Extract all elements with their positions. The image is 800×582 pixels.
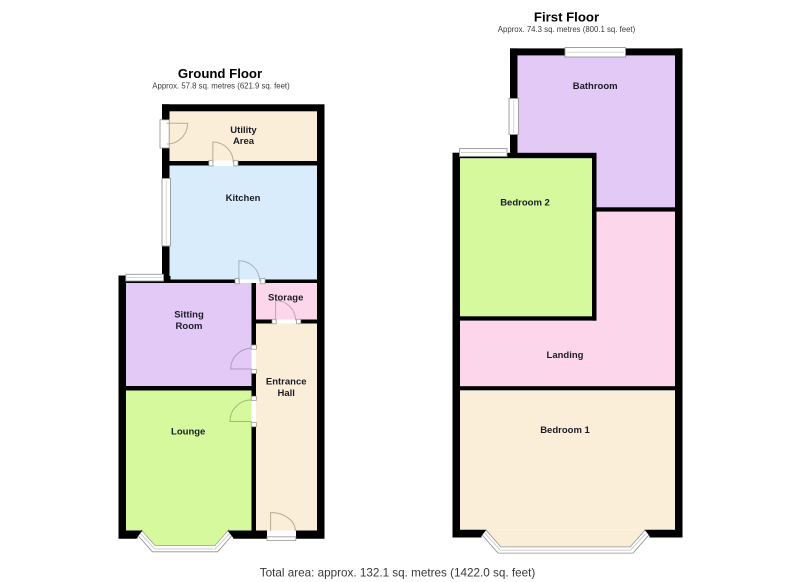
- svg-text:Area: Area: [233, 136, 255, 147]
- svg-text:Bedroom 1: Bedroom 1: [540, 425, 590, 436]
- svg-text:Ground Floor: Ground Floor: [178, 66, 262, 81]
- svg-text:Sitting: Sitting: [174, 310, 204, 321]
- svg-text:Lounge: Lounge: [171, 426, 205, 437]
- svg-text:Storage: Storage: [268, 293, 303, 304]
- svg-text:Kitchen: Kitchen: [226, 193, 261, 204]
- svg-text:Hall: Hall: [277, 388, 294, 399]
- svg-text:Bedroom 2: Bedroom 2: [500, 198, 550, 209]
- svg-text:Approx. 57.8 sq. metres (621.9: Approx. 57.8 sq. metres (621.9 sq. feet): [152, 82, 290, 91]
- svg-text:Landing: Landing: [547, 350, 584, 361]
- svg-text:Bathroom: Bathroom: [573, 81, 618, 92]
- svg-text:Room: Room: [176, 321, 203, 332]
- svg-text:Total area: approx. 132.1 sq.: Total area: approx. 132.1 sq. metres (14…: [260, 567, 536, 580]
- svg-text:Utility: Utility: [230, 125, 257, 136]
- svg-text:First Floor: First Floor: [534, 10, 599, 25]
- svg-text:Approx. 74.3 sq. metres (800.1: Approx. 74.3 sq. metres (800.1 sq. feet): [498, 25, 636, 34]
- svg-text:Entrance: Entrance: [266, 376, 307, 387]
